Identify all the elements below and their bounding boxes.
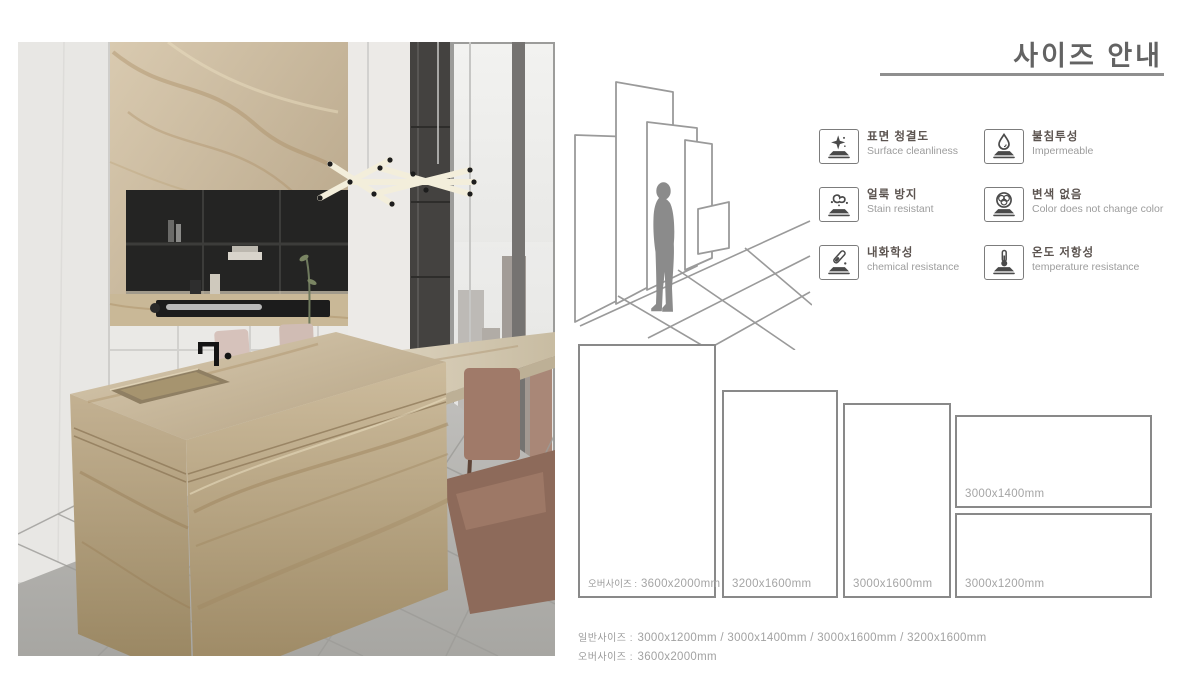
slab-size-prefix: 오버사이즈 : bbox=[588, 579, 637, 590]
slab-rect-3000x1600: 3000x1600mm bbox=[843, 403, 951, 598]
summary-value: 3600x2000mm bbox=[638, 651, 717, 663]
slab-size-label: 3000x1200mm bbox=[965, 578, 1044, 590]
feature-label-en: Stain resistant bbox=[867, 203, 934, 216]
dark-glass-cabinet bbox=[410, 42, 452, 392]
test-tube-icon bbox=[819, 245, 859, 280]
feature-label-en: Surface cleanliness bbox=[867, 145, 958, 158]
slab-scale-diagram bbox=[560, 58, 812, 350]
feature-label-ko: 불침투성 bbox=[1032, 130, 1093, 145]
summary-label: 오버사이즈 : bbox=[578, 652, 633, 663]
feature-label-en: temperature resistance bbox=[1032, 261, 1139, 274]
shelf-niche bbox=[126, 190, 348, 294]
slab-rect-3200x1600: 3200x1600mm bbox=[722, 390, 838, 598]
feature-label-ko: 얼룩 방지 bbox=[867, 188, 934, 203]
summary-value: 3000x1200mm / 3000x1400mm / 3000x1600mm … bbox=[638, 632, 987, 644]
feature-impermeable: 불침투성 Impermeable bbox=[984, 129, 1200, 169]
slab-rect-3000x1400: 3000x1400mm bbox=[955, 415, 1152, 508]
feature-label-ko: 내화학성 bbox=[867, 246, 959, 261]
slab-rect-3000x1200: 3000x1200mm bbox=[955, 513, 1152, 598]
feature-label-en: Impermeable bbox=[1032, 145, 1093, 158]
diagram-slab-5 bbox=[698, 202, 729, 254]
slab-scale-svg bbox=[560, 58, 812, 350]
feature-label-ko: 변색 없음 bbox=[1032, 188, 1163, 203]
slab-size-value: 3600x2000mm bbox=[641, 578, 720, 590]
summary-label: 일반사이즈 : bbox=[578, 633, 633, 644]
slab-size-label: 오버사이즈 :3600x2000mm bbox=[588, 576, 720, 590]
color-circles-icon bbox=[984, 187, 1024, 222]
stain-splash-icon bbox=[819, 187, 859, 222]
size-guide-slide: 사이즈 안내 bbox=[0, 0, 1200, 686]
feature-label-en: chemical resistance bbox=[867, 261, 959, 274]
thermometer-icon bbox=[984, 245, 1024, 280]
sparkle-clean-surface-icon bbox=[819, 129, 859, 164]
cabinet-column bbox=[348, 42, 410, 388]
summary-line-general: 일반사이즈 : 3000x1200mm / 3000x1400mm / 3000… bbox=[578, 628, 986, 647]
water-drop-icon bbox=[984, 129, 1024, 164]
size-summary: 일반사이즈 : 3000x1200mm / 3000x1400mm / 3000… bbox=[578, 628, 986, 666]
feature-no-color-change: 변색 없음 Color does not change color bbox=[984, 187, 1200, 227]
slab-size-label: 3200x1600mm bbox=[732, 578, 811, 590]
title-underline bbox=[880, 73, 1164, 76]
kitchen-photo-illustration bbox=[18, 42, 555, 656]
feature-label-en: Color does not change color bbox=[1032, 203, 1163, 216]
slab-rect-3600x2000: 오버사이즈 :3600x2000mm bbox=[578, 344, 716, 598]
feature-label-ko: 온도 저항성 bbox=[1032, 246, 1139, 261]
summary-line-oversize: 오버사이즈 : 3600x2000mm bbox=[578, 647, 986, 666]
page-title: 사이즈 안내 bbox=[1013, 34, 1163, 73]
slab-size-label: 3000x1400mm bbox=[965, 488, 1044, 500]
slab-size-label: 3000x1600mm bbox=[853, 578, 932, 590]
feature-temperature-resistance: 온도 저항성 temperature resistance bbox=[984, 245, 1200, 285]
kitchen-photo bbox=[18, 42, 555, 656]
feature-label-ko: 표면 청결도 bbox=[867, 130, 958, 145]
